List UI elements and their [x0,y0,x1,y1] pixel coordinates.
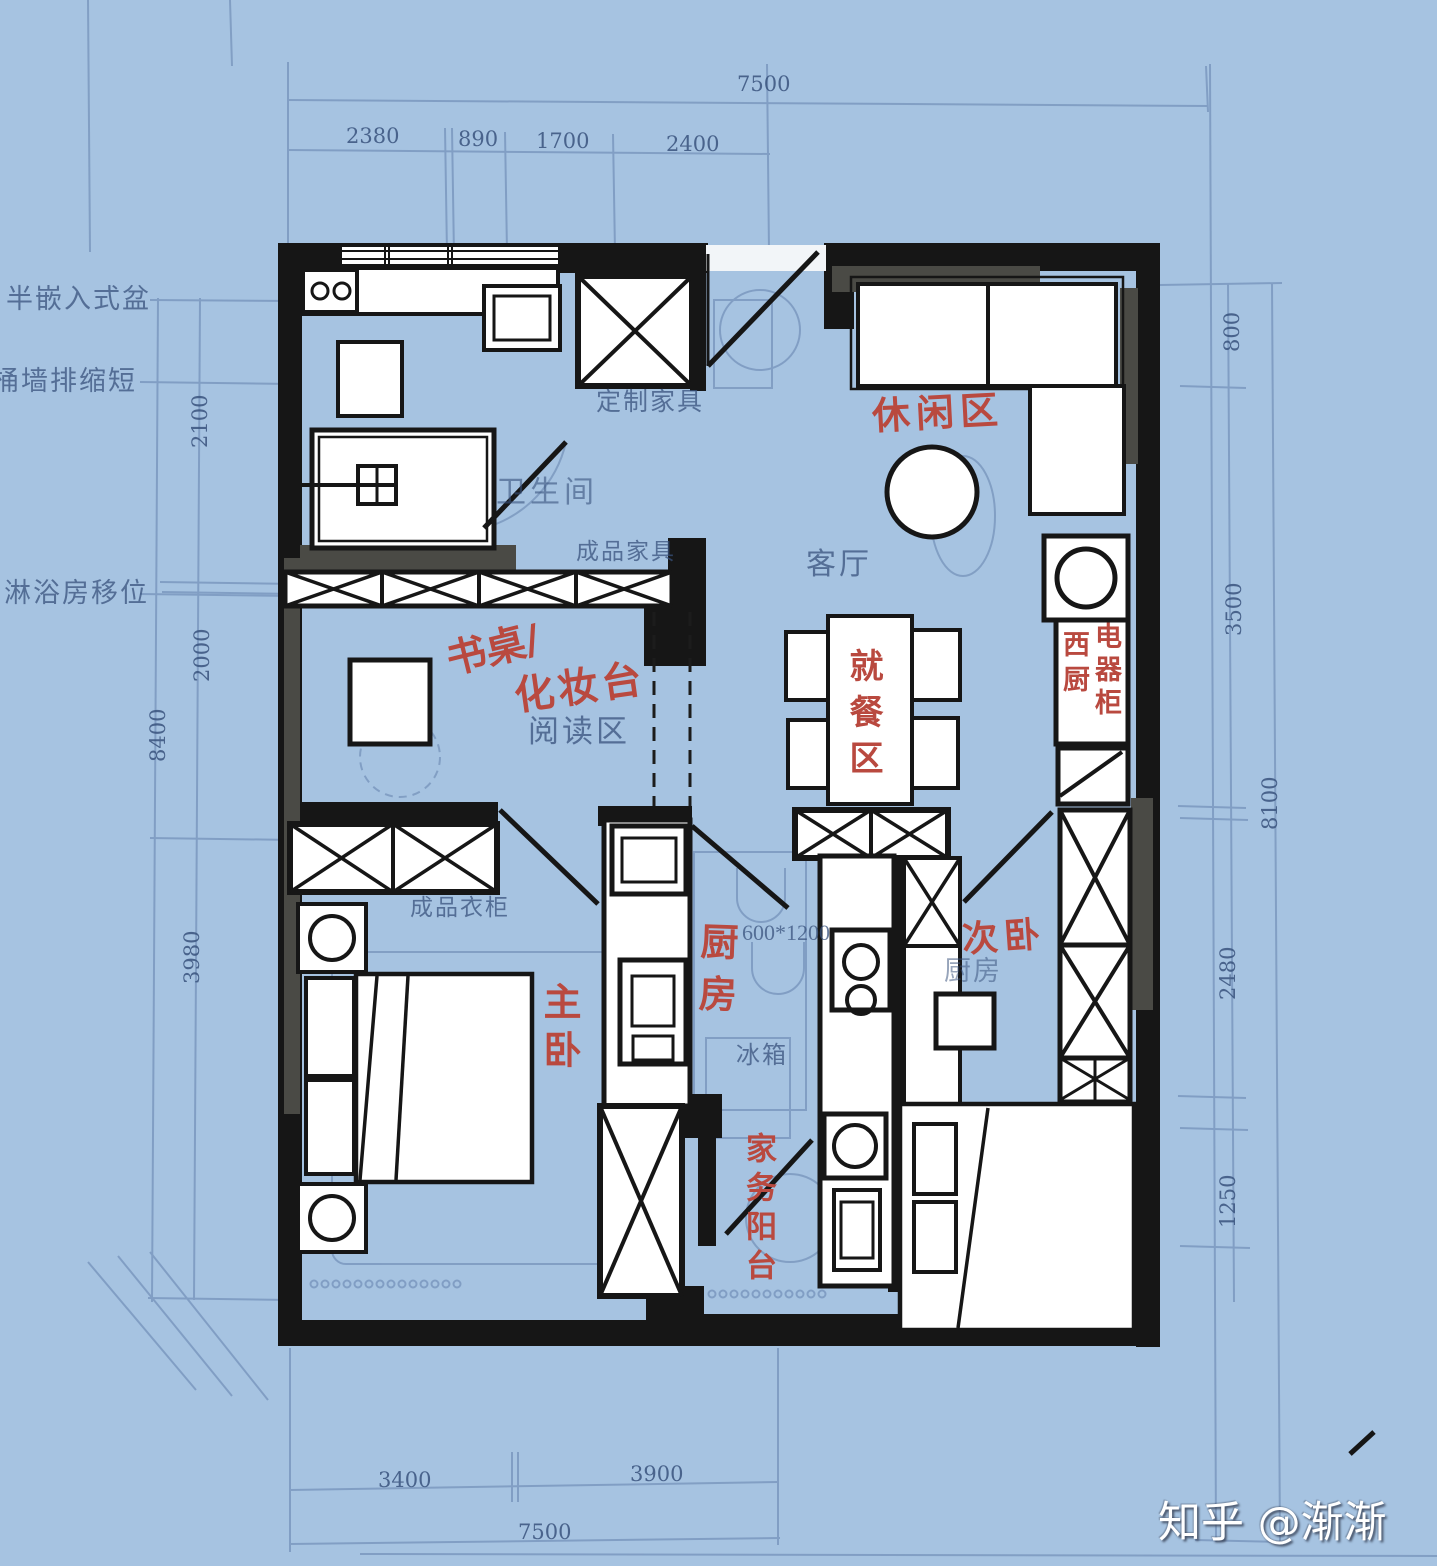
headboard-panel [306,978,354,1076]
label-finished-furniture: 成品家具 [576,540,676,563]
annotation-kitchen: 厨房 [694,921,736,1026]
note-semi-recessed-basin: 半嵌入式盆 [6,286,151,313]
dim-top-total: 7500 [737,74,790,95]
floor-plan-photo: 半嵌入式盆 桶墙排缩短 淋浴房移位 卫生间 定制家具 成品家具 阅读区 客厅 成… [0,0,1437,1566]
pillow [914,1124,956,1194]
dim-top-2: 890 [458,129,498,150]
annotation-dining-area: 就餐区 [846,648,880,786]
annotation-second-bedroom: 次卧 [961,917,1047,959]
headboard-panel [306,1080,354,1174]
pillow [914,1202,956,1272]
master-bed [356,974,532,1182]
room-label-bathroom: 卫生间 [496,478,598,508]
corner-tick [1350,1432,1374,1454]
sofa-vertical [1030,386,1124,514]
window-scallops-bedroom [311,1281,461,1288]
small-table [936,994,994,1048]
dim-bottom-total: 7500 [518,1522,571,1543]
dim-top-4: 2400 [666,134,719,155]
balcony-furniture [824,1114,886,1270]
second-bedroom-door [964,812,1052,902]
note-wall-drain-shortened: 桶墙排缩短 [0,368,137,395]
cooktop [832,930,890,1010]
dim-right-1: 800 [1222,312,1243,352]
annotation-leisure-area: 休闲区 [871,391,1005,436]
dim-left-2: 2000 [192,629,213,682]
dim-right-2: 3500 [1224,583,1245,636]
label-fridge: 冰箱 [736,1044,788,1068]
annotation-laundry-balcony: 家务阳台 [742,1132,773,1288]
zhihu-watermark: 知乎 @渐渐 [1158,1488,1387,1550]
dim-left-total: 8400 [148,709,169,762]
second-bedroom-furniture [900,810,1134,1330]
coffee-table [887,447,977,537]
label-finished-wardrobe: 成品衣柜 [410,896,510,919]
room-label-kitchen-bp: 厨房 [944,958,1002,985]
label-counter-size: 600*1200 [742,922,830,944]
dim-left-3: 3980 [182,931,203,984]
kitchen-door [692,826,788,908]
note-shower-relocated: 淋浴房移位 [4,580,149,607]
window-scallops-balcony [709,1291,826,1298]
bathroom-cabinet [338,342,402,416]
dim-top-3: 1700 [536,131,589,152]
annotation-west-kitchen: 西厨 [1060,630,1087,700]
dim-right-4: 1250 [1218,1175,1239,1228]
dim-bottom-2: 3900 [630,1464,683,1485]
dim-bottom-1: 3400 [378,1470,431,1491]
master-bedroom-door [500,810,598,904]
master-bedroom-furniture [290,824,532,1252]
room-label-living-room: 客厅 [806,550,872,580]
dim-top-1: 2380 [346,126,399,147]
room-label-reading-area: 阅读区 [528,716,630,747]
label-custom-furniture: 定制家具 [596,390,704,415]
dim-right-total: 8100 [1260,777,1281,830]
annotation-master-bedroom: 主卧 [540,982,578,1078]
dim-right-3: 2480 [1218,947,1239,1000]
floor-plan-drawing [0,0,1437,1566]
shower-tray [312,430,494,548]
dim-left-1: 2100 [190,395,211,448]
desk [350,660,430,744]
annotation-appliance-cabinet: 电器柜 [1092,622,1119,721]
